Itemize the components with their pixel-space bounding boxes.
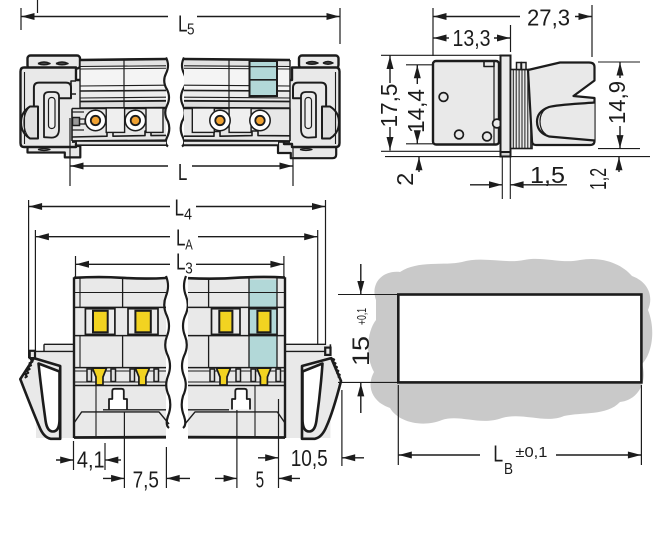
svg-text:17,5: 17,5 xyxy=(376,84,402,128)
svg-text:1,2: 1,2 xyxy=(585,168,611,190)
svg-text:13,3: 13,3 xyxy=(453,25,491,51)
svg-text:7,5: 7,5 xyxy=(133,467,159,493)
svg-text:4,1: 4,1 xyxy=(77,447,105,473)
svg-text:2: 2 xyxy=(392,173,418,186)
svg-text:14,9: 14,9 xyxy=(604,81,630,124)
svg-text:1,5: 1,5 xyxy=(530,162,565,188)
svg-text:±0,1: ±0,1 xyxy=(515,444,547,461)
svg-text:A: A xyxy=(185,237,193,254)
svg-text:3: 3 xyxy=(185,261,193,278)
svg-text:5: 5 xyxy=(256,467,265,493)
svg-text:4: 4 xyxy=(184,207,192,224)
svg-text:B: B xyxy=(504,461,513,478)
svg-text:10,5: 10,5 xyxy=(291,445,328,471)
svg-text:L: L xyxy=(176,225,186,251)
svg-text:27,3: 27,3 xyxy=(527,5,570,31)
svg-text:L: L xyxy=(175,195,185,221)
svg-text:L: L xyxy=(176,249,186,275)
svg-text:+0,1: +0,1 xyxy=(354,308,369,325)
svg-text:5: 5 xyxy=(187,22,195,39)
svg-text:15: 15 xyxy=(348,336,375,366)
svg-text:14,4: 14,4 xyxy=(403,89,429,133)
svg-text:L: L xyxy=(178,159,188,185)
svg-text:L: L xyxy=(493,441,503,467)
